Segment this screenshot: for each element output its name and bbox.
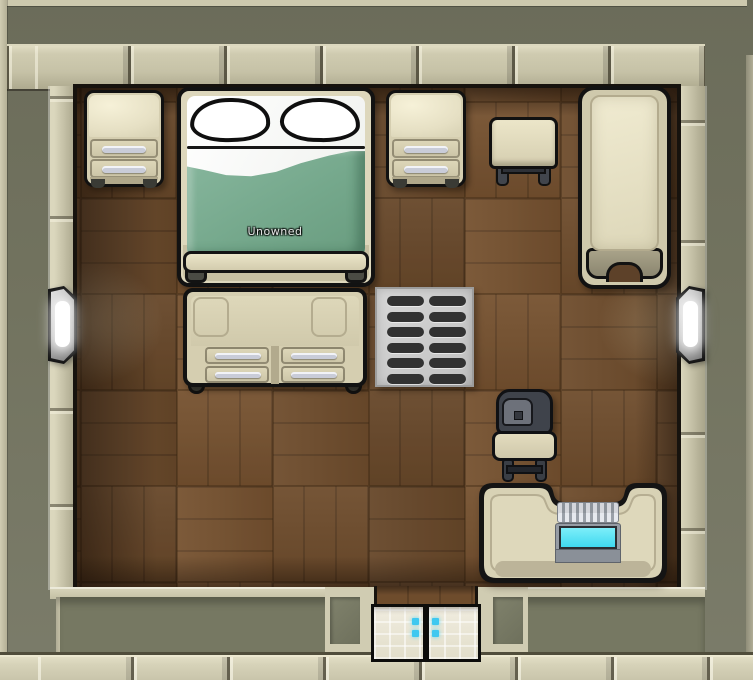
north-outer-wall-strip (7, 0, 747, 6)
door-panel-right (429, 607, 478, 659)
floor-tile (369, 390, 465, 486)
armchair[interactable] (578, 86, 671, 289)
dresser-top-panel (311, 297, 347, 337)
vent-slat (429, 327, 466, 337)
floor-tile (81, 198, 177, 294)
lamp-glow (55, 301, 70, 347)
armchair-leg-arch (606, 262, 643, 282)
drawer-handle (404, 166, 448, 173)
wall-lamp-east[interactable] (676, 286, 705, 364)
desk-front-panel (495, 561, 651, 577)
floor-tile (465, 198, 561, 294)
dresser-body (183, 288, 367, 387)
floor-tile (561, 294, 657, 390)
floor-tile (465, 84, 561, 102)
furniture-foot (393, 179, 407, 188)
drawer-handle (102, 166, 146, 173)
door-indicator-light (432, 630, 439, 637)
drawer (90, 159, 158, 178)
drawer (281, 347, 345, 364)
floor-tile (73, 390, 81, 486)
drawer-handle (404, 146, 448, 153)
keyboard (557, 502, 619, 523)
door-panel-left (374, 607, 423, 659)
drawer (205, 366, 269, 383)
vent-slat (429, 312, 466, 322)
drawer-handle (102, 146, 146, 153)
drawer-handle (215, 372, 261, 378)
door-indicator-light (432, 618, 439, 625)
double-bed[interactable] (177, 87, 375, 287)
floor-tile (657, 390, 681, 486)
chair-crossbar (506, 465, 543, 474)
chair-seat (492, 431, 557, 461)
drawer-handle (215, 353, 261, 359)
wall-top-panel (330, 597, 360, 644)
floor-tile (273, 486, 369, 582)
drawer (281, 366, 345, 383)
floor-tile (369, 198, 465, 294)
end-table-north[interactable] (386, 90, 466, 187)
vent-slat (387, 312, 424, 322)
floor-tile (81, 294, 177, 390)
east-outer-wall-strip (746, 55, 753, 655)
sheet-seam (187, 146, 365, 149)
dresser-divider (271, 346, 279, 384)
end-table-top (391, 95, 461, 137)
vent[interactable] (375, 287, 474, 387)
vent-slat (387, 358, 424, 368)
floor-tile (73, 198, 81, 294)
floor-tile (465, 294, 561, 390)
dining-chair[interactable] (492, 389, 557, 484)
drawer (392, 159, 460, 178)
vent-slat (387, 296, 424, 306)
floor-tile (81, 390, 177, 486)
autodoor[interactable] (371, 604, 481, 662)
furniture-foot (91, 179, 105, 188)
chair-backrest-knob (514, 411, 523, 420)
floor-tile (177, 486, 273, 582)
game-viewport: Unowned (0, 0, 753, 680)
furniture-foot (143, 179, 157, 188)
wall-lamp-west[interactable] (48, 286, 77, 364)
floor-tile (561, 390, 657, 486)
armchair-cushion (590, 95, 659, 251)
door-indicator-light (412, 630, 419, 637)
drawer-handle (291, 372, 337, 378)
floor-tile (369, 486, 465, 582)
vent-slat (387, 374, 424, 384)
furniture-foot (445, 179, 459, 188)
west-outer-wall-strip (0, 0, 7, 652)
bed-ownership-label: Unowned (248, 225, 303, 238)
vent-slat (429, 296, 466, 306)
drawer-handle (291, 353, 337, 359)
floor-tile (73, 486, 81, 582)
north-wall (7, 44, 705, 89)
dresser-top-panel (193, 297, 229, 337)
door-indicator-light (412, 618, 419, 625)
lamp-glow (683, 301, 698, 347)
end-table-northwest[interactable] (84, 90, 164, 187)
vent-slat (387, 327, 424, 337)
dresser[interactable] (183, 288, 367, 400)
computer-desk[interactable] (477, 481, 669, 585)
vent-slat (387, 343, 424, 353)
floor-tile (273, 390, 369, 486)
end-table-top (89, 95, 159, 137)
drawer (205, 347, 269, 364)
monitor-screen (559, 526, 617, 549)
vent-grill (377, 289, 472, 385)
stool[interactable] (489, 117, 558, 188)
floor-tile (73, 84, 81, 102)
floor-tile (73, 102, 81, 198)
drawer (90, 139, 158, 158)
monitor-base (555, 549, 621, 563)
door-jamb-right (478, 587, 528, 656)
vent-slat (429, 374, 466, 384)
floor-tile (177, 390, 273, 486)
stool-top (489, 117, 558, 169)
vent-slat (429, 343, 466, 353)
drawer (392, 139, 460, 158)
vent-slat (429, 358, 466, 368)
wall-top-panel (493, 597, 523, 644)
door-jamb-left (325, 587, 375, 656)
floor-tile (81, 486, 177, 582)
bed-footboard (183, 251, 369, 273)
